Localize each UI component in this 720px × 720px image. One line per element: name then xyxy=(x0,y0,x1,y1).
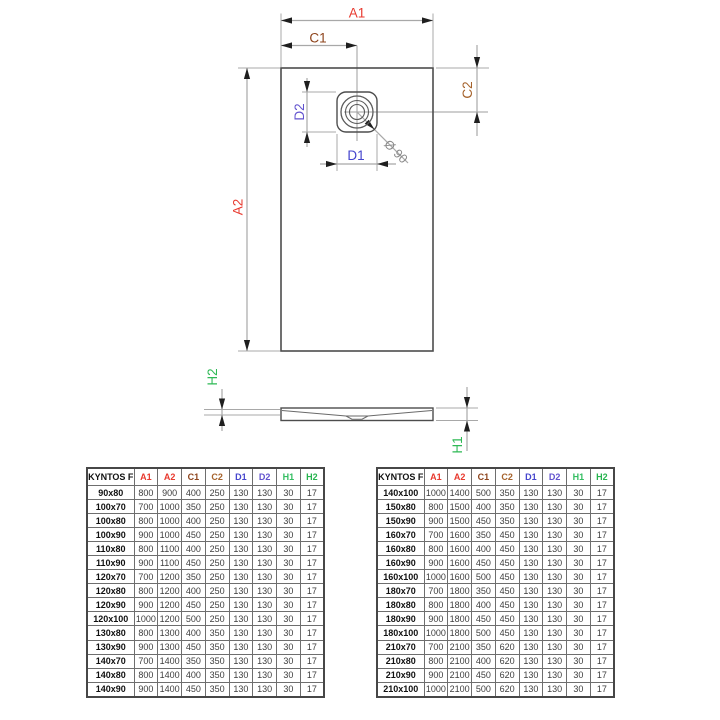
tray-side-view xyxy=(281,408,433,421)
size-cell: 210x70 xyxy=(377,640,424,654)
value-cell: 130 xyxy=(229,668,253,682)
value-cell: 130 xyxy=(519,654,543,668)
size-cell: 130x90 xyxy=(87,640,134,654)
value-cell: 620 xyxy=(495,654,519,668)
column-header-h1: H1 xyxy=(567,468,591,486)
size-cell: 90x80 xyxy=(87,486,134,500)
column-header-h2: H2 xyxy=(590,468,614,486)
value-cell: 900 xyxy=(134,640,158,654)
size-spec-table-right: KYNTOS FA1A2C1C2D1D2H1H2 140x10010001400… xyxy=(376,467,615,698)
value-cell: 130 xyxy=(253,584,277,598)
value-cell: 1500 xyxy=(448,514,472,528)
value-cell: 17 xyxy=(300,598,324,612)
value-cell: 450 xyxy=(472,612,496,626)
size-cell: 180x70 xyxy=(377,584,424,598)
table-row: 140x100100014005003501301303017 xyxy=(377,486,614,500)
value-cell: 800 xyxy=(134,584,158,598)
value-cell: 30 xyxy=(277,500,301,514)
table-row: 100x7070010003502501301303017 xyxy=(87,500,324,514)
value-cell: 17 xyxy=(590,654,614,668)
table-row: 210x9090021004506201301303017 xyxy=(377,668,614,682)
value-cell: 1200 xyxy=(158,570,182,584)
dim-label-c1: C1 xyxy=(309,31,326,46)
value-cell: 130 xyxy=(543,486,567,500)
dim-label-a2: A2 xyxy=(231,199,246,216)
value-cell: 130 xyxy=(229,570,253,584)
table-row: 160x8080016004004501301303017 xyxy=(377,542,614,556)
value-cell: 900 xyxy=(134,556,158,570)
value-cell: 250 xyxy=(205,500,229,514)
side-view-slope-lines xyxy=(282,411,432,420)
value-cell: 17 xyxy=(300,570,324,584)
value-cell: 30 xyxy=(277,556,301,570)
value-cell: 1400 xyxy=(158,668,182,682)
value-cell: 30 xyxy=(277,598,301,612)
dim-label-d1: D1 xyxy=(347,148,364,163)
column-header-h1: H1 xyxy=(277,468,301,486)
value-cell: 130 xyxy=(519,612,543,626)
value-cell: 620 xyxy=(495,640,519,654)
value-cell: 17 xyxy=(300,612,324,626)
value-cell: 130 xyxy=(543,556,567,570)
value-cell: 130 xyxy=(229,500,253,514)
value-cell: 2100 xyxy=(448,654,472,668)
value-cell: 130 xyxy=(519,486,543,500)
value-cell: 900 xyxy=(424,556,448,570)
value-cell: 130 xyxy=(253,668,277,682)
value-cell: 800 xyxy=(424,598,448,612)
value-cell: 30 xyxy=(277,626,301,640)
value-cell: 130 xyxy=(253,682,277,697)
value-cell: 30 xyxy=(567,584,591,598)
value-cell: 30 xyxy=(277,584,301,598)
value-cell: 130 xyxy=(543,654,567,668)
size-cell: 160x70 xyxy=(377,528,424,542)
value-cell: 30 xyxy=(277,640,301,654)
value-cell: 130 xyxy=(253,612,277,626)
value-cell: 17 xyxy=(300,668,324,682)
value-cell: 350 xyxy=(205,668,229,682)
value-cell: 450 xyxy=(495,542,519,556)
value-cell: 1000 xyxy=(158,514,182,528)
value-cell: 700 xyxy=(424,584,448,598)
column-header-c1: C1 xyxy=(182,468,206,486)
table-name-header: KYNTOS F xyxy=(87,468,134,486)
value-cell: 2100 xyxy=(448,682,472,697)
value-cell: 130 xyxy=(253,556,277,570)
value-cell: 17 xyxy=(590,584,614,598)
value-cell: 130 xyxy=(543,570,567,584)
value-cell: 17 xyxy=(590,528,614,542)
value-cell: 17 xyxy=(300,500,324,514)
value-cell: 130 xyxy=(543,626,567,640)
value-cell: 350 xyxy=(205,654,229,668)
value-cell: 30 xyxy=(567,570,591,584)
value-cell: 900 xyxy=(134,528,158,542)
value-cell: 450 xyxy=(495,556,519,570)
value-cell: 350 xyxy=(495,514,519,528)
value-cell: 17 xyxy=(300,654,324,668)
value-cell: 350 xyxy=(472,584,496,598)
value-cell: 17 xyxy=(590,640,614,654)
value-cell: 500 xyxy=(472,486,496,500)
value-cell: 700 xyxy=(134,654,158,668)
value-cell: 30 xyxy=(567,640,591,654)
size-cell: 150x90 xyxy=(377,514,424,528)
size-cell: 130x80 xyxy=(87,626,134,640)
header-row: KYNTOS FA1A2C1C2D1D2H1H2 xyxy=(377,468,614,486)
value-cell: 350 xyxy=(205,682,229,697)
value-cell: 400 xyxy=(182,584,206,598)
value-cell: 30 xyxy=(277,486,301,500)
value-cell: 30 xyxy=(567,556,591,570)
value-cell: 350 xyxy=(205,626,229,640)
value-cell: 17 xyxy=(590,542,614,556)
value-cell: 1000 xyxy=(158,500,182,514)
value-cell: 130 xyxy=(253,570,277,584)
value-cell: 30 xyxy=(277,570,301,584)
table-row: 150x8080015004003501301303017 xyxy=(377,500,614,514)
value-cell: 130 xyxy=(229,626,253,640)
value-cell: 17 xyxy=(300,514,324,528)
value-cell: 1300 xyxy=(158,640,182,654)
value-cell: 500 xyxy=(472,682,496,697)
value-cell: 130 xyxy=(229,598,253,612)
size-cell: 100x90 xyxy=(87,528,134,542)
value-cell: 1000 xyxy=(134,612,158,626)
size-cell: 100x80 xyxy=(87,514,134,528)
value-cell: 450 xyxy=(182,528,206,542)
value-cell: 130 xyxy=(543,640,567,654)
table-row: 100x9090010004502501301303017 xyxy=(87,528,324,542)
value-cell: 17 xyxy=(300,486,324,500)
value-cell: 30 xyxy=(567,598,591,612)
size-cell: 100x70 xyxy=(87,500,134,514)
value-cell: 130 xyxy=(543,500,567,514)
dim-label-a1: A1 xyxy=(349,6,366,21)
value-cell: 30 xyxy=(567,668,591,682)
value-cell: 900 xyxy=(134,598,158,612)
dim-label-c2: C2 xyxy=(460,81,475,98)
value-cell: 130 xyxy=(543,528,567,542)
value-cell: 900 xyxy=(158,486,182,500)
value-cell: 400 xyxy=(472,500,496,514)
value-cell: 130 xyxy=(543,542,567,556)
value-cell: 130 xyxy=(519,584,543,598)
value-cell: 130 xyxy=(519,640,543,654)
value-cell: 17 xyxy=(590,612,614,626)
value-cell: 450 xyxy=(182,598,206,612)
table-row: 160x9090016004504501301303017 xyxy=(377,556,614,570)
value-cell: 30 xyxy=(567,500,591,514)
value-cell: 130 xyxy=(519,626,543,640)
value-cell: 17 xyxy=(300,626,324,640)
column-header-d1: D1 xyxy=(229,468,253,486)
value-cell: 30 xyxy=(567,542,591,556)
value-cell: 350 xyxy=(182,570,206,584)
value-cell: 17 xyxy=(590,556,614,570)
value-cell: 30 xyxy=(567,514,591,528)
value-cell: 30 xyxy=(277,654,301,668)
value-cell: 1000 xyxy=(424,626,448,640)
value-cell: 30 xyxy=(277,668,301,682)
value-cell: 450 xyxy=(495,584,519,598)
value-cell: 130 xyxy=(253,640,277,654)
value-cell: 450 xyxy=(495,598,519,612)
value-cell: 900 xyxy=(424,514,448,528)
value-cell: 130 xyxy=(543,682,567,697)
value-cell: 17 xyxy=(300,682,324,697)
value-cell: 1000 xyxy=(158,528,182,542)
value-cell: 1600 xyxy=(448,528,472,542)
value-cell: 1100 xyxy=(158,556,182,570)
value-cell: 400 xyxy=(182,514,206,528)
value-cell: 130 xyxy=(519,598,543,612)
value-cell: 130 xyxy=(253,542,277,556)
value-cell: 130 xyxy=(519,528,543,542)
value-cell: 450 xyxy=(472,514,496,528)
column-header-h2: H2 xyxy=(300,468,324,486)
value-cell: 130 xyxy=(253,626,277,640)
value-cell: 30 xyxy=(277,682,301,697)
table-row: 180x9090018004504501301303017 xyxy=(377,612,614,626)
value-cell: 1800 xyxy=(448,598,472,612)
technical-drawing: A1 C1 A2 C2 D2 D1 H2 H1 Ø 90 xyxy=(0,0,720,465)
value-cell: 17 xyxy=(590,682,614,697)
value-cell: 350 xyxy=(182,500,206,514)
table-row: 160x7070016003504501301303017 xyxy=(377,528,614,542)
column-header-c1: C1 xyxy=(472,468,496,486)
value-cell: 350 xyxy=(495,486,519,500)
value-cell: 1500 xyxy=(448,500,472,514)
column-header-d2: D2 xyxy=(543,468,567,486)
value-cell: 130 xyxy=(253,528,277,542)
value-cell: 1600 xyxy=(448,570,472,584)
size-cell: 210x80 xyxy=(377,654,424,668)
header-row: KYNTOS FA1A2C1C2D1D2H1H2 xyxy=(87,468,324,486)
size-cell: 180x90 xyxy=(377,612,424,626)
table-row: 180x100100018005004501301303017 xyxy=(377,626,614,640)
value-cell: 350 xyxy=(205,640,229,654)
value-cell: 17 xyxy=(590,626,614,640)
value-cell: 500 xyxy=(182,612,206,626)
dim-label-d2: D2 xyxy=(292,103,307,120)
value-cell: 400 xyxy=(472,542,496,556)
table-row: 100x8080010004002501301303017 xyxy=(87,514,324,528)
column-header-a2: A2 xyxy=(158,468,182,486)
value-cell: 620 xyxy=(495,682,519,697)
size-cell: 110x90 xyxy=(87,556,134,570)
size-cell: 120x80 xyxy=(87,584,134,598)
table-row: 120x8080012004002501301303017 xyxy=(87,584,324,598)
column-header-a2: A2 xyxy=(448,468,472,486)
value-cell: 450 xyxy=(495,612,519,626)
value-cell: 250 xyxy=(205,570,229,584)
value-cell: 900 xyxy=(424,668,448,682)
value-cell: 1800 xyxy=(448,626,472,640)
value-cell: 130 xyxy=(519,556,543,570)
value-cell: 400 xyxy=(182,486,206,500)
size-cell: 150x80 xyxy=(377,500,424,514)
dim-label-h2: H2 xyxy=(205,368,220,385)
value-cell: 130 xyxy=(253,598,277,612)
value-cell: 17 xyxy=(300,542,324,556)
dimension-lines xyxy=(222,21,477,452)
value-cell: 1400 xyxy=(158,682,182,697)
value-cell: 2100 xyxy=(448,640,472,654)
value-cell: 400 xyxy=(472,598,496,612)
value-cell: 130 xyxy=(519,682,543,697)
value-cell: 1400 xyxy=(448,486,472,500)
value-cell: 130 xyxy=(229,682,253,697)
value-cell: 30 xyxy=(567,486,591,500)
value-cell: 400 xyxy=(182,626,206,640)
value-cell: 130 xyxy=(229,556,253,570)
value-cell: 800 xyxy=(134,668,158,682)
value-cell: 450 xyxy=(495,570,519,584)
value-cell: 250 xyxy=(205,584,229,598)
value-cell: 130 xyxy=(229,612,253,626)
value-cell: 1200 xyxy=(158,598,182,612)
table-row: 90x808009004002501301303017 xyxy=(87,486,324,500)
value-cell: 1300 xyxy=(158,626,182,640)
table-row: 180x7070018003504501301303017 xyxy=(377,584,614,598)
value-cell: 400 xyxy=(472,654,496,668)
value-cell: 30 xyxy=(567,654,591,668)
value-cell: 800 xyxy=(134,486,158,500)
size-cell: 120x100 xyxy=(87,612,134,626)
value-cell: 1600 xyxy=(448,556,472,570)
value-cell: 1100 xyxy=(158,542,182,556)
value-cell: 30 xyxy=(277,542,301,556)
value-cell: 130 xyxy=(519,570,543,584)
value-cell: 17 xyxy=(590,500,614,514)
value-cell: 800 xyxy=(134,542,158,556)
table-row: 160x100100016005004501301303017 xyxy=(377,570,614,584)
value-cell: 17 xyxy=(300,556,324,570)
value-cell: 130 xyxy=(229,542,253,556)
value-cell: 800 xyxy=(134,626,158,640)
value-cell: 2100 xyxy=(448,668,472,682)
table-row: 130x8080013004003501301303017 xyxy=(87,626,324,640)
size-cell: 110x80 xyxy=(87,542,134,556)
value-cell: 17 xyxy=(590,598,614,612)
value-cell: 400 xyxy=(182,668,206,682)
value-cell: 130 xyxy=(519,500,543,514)
value-cell: 700 xyxy=(134,500,158,514)
value-cell: 130 xyxy=(543,584,567,598)
value-cell: 700 xyxy=(134,570,158,584)
value-cell: 17 xyxy=(590,668,614,682)
table-row: 210x8080021004006201301303017 xyxy=(377,654,614,668)
size-cell: 120x70 xyxy=(87,570,134,584)
table-row: 210x7070021003506201301303017 xyxy=(377,640,614,654)
value-cell: 130 xyxy=(229,640,253,654)
value-cell: 17 xyxy=(590,570,614,584)
size-cell: 180x100 xyxy=(377,626,424,640)
size-cell: 160x100 xyxy=(377,570,424,584)
value-cell: 30 xyxy=(567,612,591,626)
value-cell: 130 xyxy=(253,500,277,514)
value-cell: 130 xyxy=(519,668,543,682)
value-cell: 450 xyxy=(472,668,496,682)
column-header-a1: A1 xyxy=(424,468,448,486)
value-cell: 1800 xyxy=(448,612,472,626)
value-cell: 1000 xyxy=(424,570,448,584)
column-header-c2: C2 xyxy=(495,468,519,486)
size-cell: 140x100 xyxy=(377,486,424,500)
value-cell: 450 xyxy=(472,556,496,570)
value-cell: 800 xyxy=(424,542,448,556)
value-cell: 350 xyxy=(472,528,496,542)
size-cell: 140x70 xyxy=(87,654,134,668)
value-cell: 450 xyxy=(182,682,206,697)
value-cell: 900 xyxy=(424,612,448,626)
value-cell: 17 xyxy=(590,486,614,500)
value-cell: 250 xyxy=(205,514,229,528)
value-cell: 700 xyxy=(424,528,448,542)
value-cell: 1600 xyxy=(448,542,472,556)
value-cell: 130 xyxy=(253,486,277,500)
value-cell: 700 xyxy=(424,640,448,654)
value-cell: 1000 xyxy=(424,682,448,697)
table-row: 120x9090012004502501301303017 xyxy=(87,598,324,612)
value-cell: 400 xyxy=(182,542,206,556)
value-cell: 130 xyxy=(519,514,543,528)
value-cell: 17 xyxy=(300,584,324,598)
value-cell: 30 xyxy=(277,528,301,542)
value-cell: 900 xyxy=(134,682,158,697)
value-cell: 250 xyxy=(205,486,229,500)
table-row: 120x7070012003502501301303017 xyxy=(87,570,324,584)
table-row: 130x9090013004503501301303017 xyxy=(87,640,324,654)
value-cell: 130 xyxy=(229,514,253,528)
value-cell: 17 xyxy=(300,528,324,542)
table-row: 210x100100021005006201301303017 xyxy=(377,682,614,697)
value-cell: 250 xyxy=(205,528,229,542)
value-cell: 30 xyxy=(567,528,591,542)
value-cell: 250 xyxy=(205,612,229,626)
size-cell: 210x100 xyxy=(377,682,424,697)
value-cell: 800 xyxy=(424,654,448,668)
value-cell: 130 xyxy=(229,584,253,598)
value-cell: 450 xyxy=(182,640,206,654)
value-cell: 1800 xyxy=(448,584,472,598)
size-cell: 160x80 xyxy=(377,542,424,556)
value-cell: 130 xyxy=(543,514,567,528)
value-cell: 1000 xyxy=(424,486,448,500)
size-cell: 140x90 xyxy=(87,682,134,697)
value-cell: 130 xyxy=(543,598,567,612)
value-cell: 130 xyxy=(229,528,253,542)
column-header-d1: D1 xyxy=(519,468,543,486)
column-header-c2: C2 xyxy=(205,468,229,486)
size-cell: 180x80 xyxy=(377,598,424,612)
value-cell: 250 xyxy=(205,542,229,556)
table-row: 110x8080011004002501301303017 xyxy=(87,542,324,556)
value-cell: 130 xyxy=(543,612,567,626)
table-row: 150x9090015004503501301303017 xyxy=(377,514,614,528)
value-cell: 130 xyxy=(519,542,543,556)
value-cell: 450 xyxy=(495,528,519,542)
value-cell: 1200 xyxy=(158,584,182,598)
size-cell: 120x90 xyxy=(87,598,134,612)
table-row: 180x8080018004004501301303017 xyxy=(377,598,614,612)
table-row: 140x9090014004503501301303017 xyxy=(87,682,324,697)
shower-tray-drawing: A1 C1 A2 C2 D2 D1 H2 H1 Ø 90 xyxy=(0,0,720,460)
value-cell: 1200 xyxy=(158,612,182,626)
value-cell: 800 xyxy=(424,500,448,514)
